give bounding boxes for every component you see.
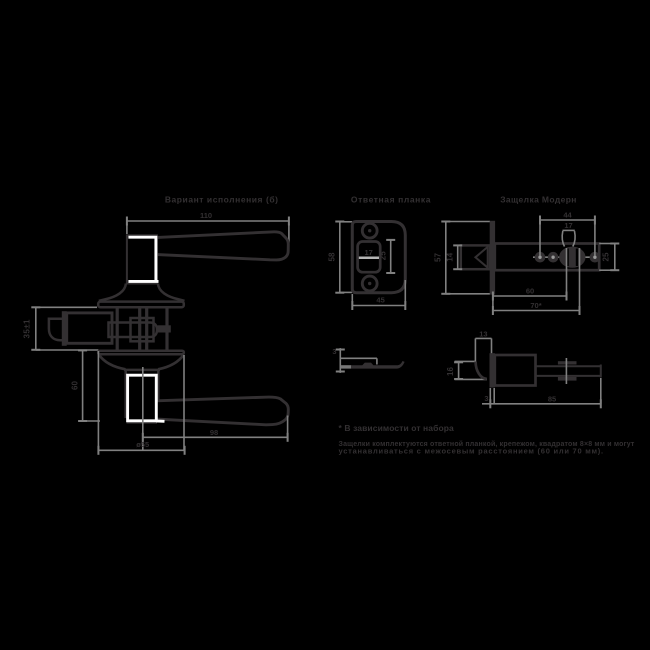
svg-text:57: 57: [434, 253, 443, 262]
svg-text:44: 44: [563, 211, 572, 220]
svg-text:3: 3: [484, 394, 488, 403]
svg-text:25: 25: [379, 251, 388, 260]
svg-text:Вариант исполнения (б): Вариант исполнения (б): [165, 194, 279, 204]
svg-text:70*: 70*: [530, 301, 541, 310]
svg-text:17: 17: [365, 248, 373, 257]
svg-text:Защелка Модерн: Защелка Модерн: [500, 194, 577, 204]
svg-text:* В зависимости от набора: * В зависимости от набора: [339, 423, 455, 433]
svg-text:16: 16: [446, 367, 455, 376]
svg-text:25: 25: [602, 252, 611, 261]
svg-text:17: 17: [564, 221, 572, 230]
svg-text:98: 98: [210, 428, 218, 437]
svg-text:3: 3: [332, 347, 336, 356]
svg-text:35±1: 35±1: [23, 319, 32, 338]
svg-text:14: 14: [445, 252, 454, 261]
svg-text:13: 13: [479, 330, 487, 339]
svg-text:устанавливаться с межосевым ра: устанавливаться с межосевым расстоянием …: [339, 446, 604, 455]
svg-text:110: 110: [200, 211, 212, 220]
svg-text:45: 45: [376, 296, 384, 305]
svg-text:60: 60: [71, 381, 80, 390]
svg-text:Ответная планка: Ответная планка: [351, 194, 431, 204]
svg-text:58: 58: [328, 252, 337, 261]
svg-text:ø55: ø55: [136, 440, 149, 449]
svg-text:85: 85: [548, 394, 556, 403]
svg-text:60: 60: [526, 286, 534, 295]
